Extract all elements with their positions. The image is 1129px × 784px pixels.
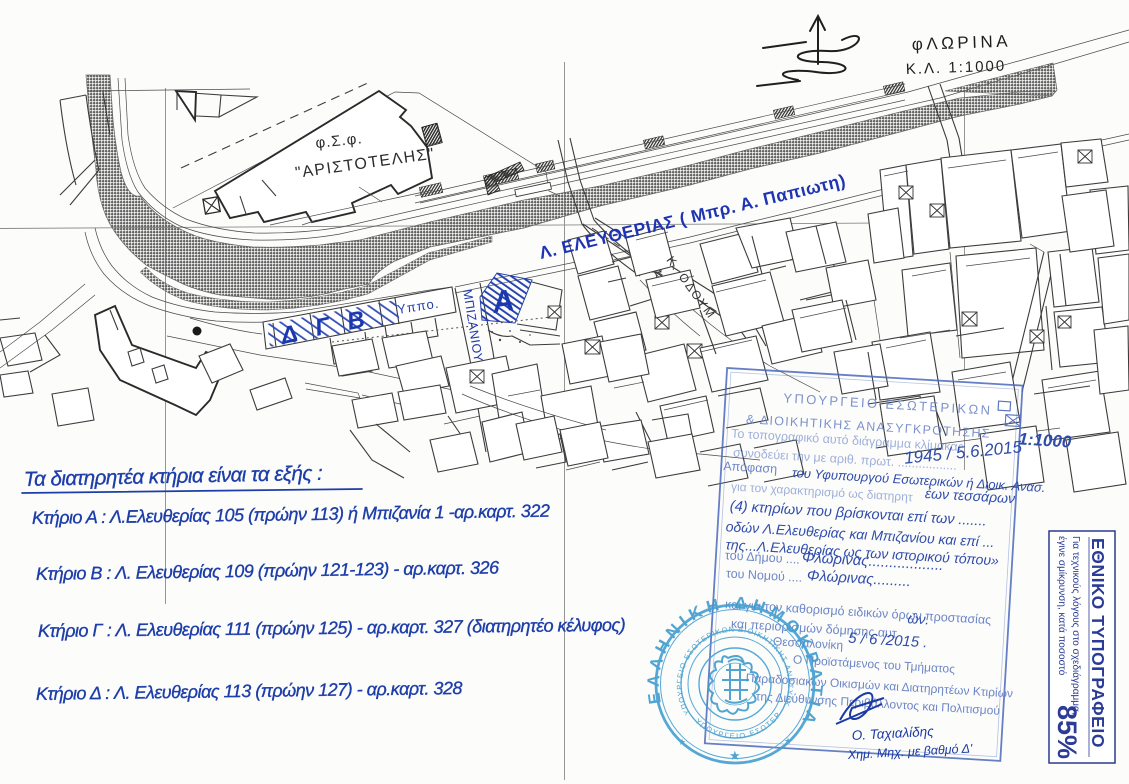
svg-text:★: ★ bbox=[784, 736, 792, 746]
svg-text:★: ★ bbox=[729, 748, 741, 763]
svg-text:1:1000: 1:1000 bbox=[1018, 429, 1073, 451]
svg-text:φΛΩΡΙΝΑ: φΛΩΡΙΝΑ bbox=[911, 32, 1011, 54]
svg-text:ΕΘΝΙΚΟ ΤΥΠΟΓΡΑΦΕΙΟ: ΕΘΝΙΚΟ ΤΥΠΟΓΡΑΦΕΙΟ bbox=[1088, 538, 1108, 748]
svg-text:ών.: ών. bbox=[907, 610, 930, 627]
svg-text:Κ.Λ. 1:1000: Κ.Λ. 1:1000 bbox=[906, 58, 1007, 78]
svg-text:Για τεχνικούς λόγους στο σχεδι: Για τεχνικούς λόγους στο σχεδιάγραμμα, bbox=[1070, 536, 1082, 715]
svg-text:★: ★ bbox=[678, 737, 686, 747]
svg-text:85%: 85% bbox=[1052, 705, 1082, 759]
svg-text:έγινε σμίκρυνση, κατά ποσοστό: έγινε σμίκρυνση, κατά ποσοστό bbox=[1056, 536, 1068, 676]
